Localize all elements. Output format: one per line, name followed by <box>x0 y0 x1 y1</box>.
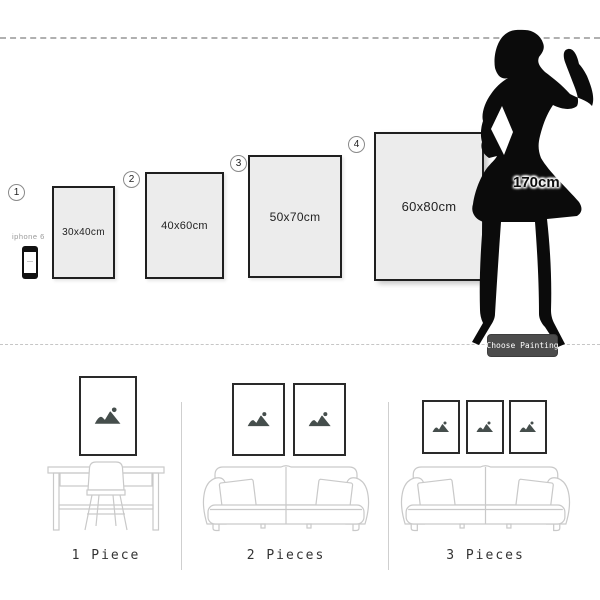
size-frame-50x70: 50x70cm <box>248 155 342 278</box>
wall-frame-scene2-right <box>293 383 346 456</box>
wall-frame-scene1 <box>79 376 137 456</box>
option-number-1: 1 <box>8 184 25 201</box>
iphone-icon <box>22 246 38 279</box>
desk-and-chair-illustration <box>47 458 165 534</box>
image-placeholder-icon <box>247 410 271 429</box>
scene-divider-1 <box>181 402 182 570</box>
sofa-illustration <box>201 461 371 533</box>
image-placeholder-icon <box>519 420 537 434</box>
size-label-50x70: 50x70cm <box>270 210 321 224</box>
wall-frame-scene2-left <box>232 383 285 456</box>
size-frame-30x40: 30x40cm <box>52 186 115 279</box>
size-label-30x40: 30x40cm <box>62 227 105 238</box>
image-placeholder-icon <box>476 420 494 434</box>
phone-label: iphone 6 <box>12 232 52 241</box>
wall-frame-scene3-right <box>509 400 547 454</box>
size-label-40x60: 40x60cm <box>161 220 208 232</box>
sofa-illustration <box>399 461 572 533</box>
option-number-4: 4 <box>348 136 365 153</box>
size-guide-infographic: 1 2 3 4 30x40cm 40x60cm 50x70cm 60x80cm … <box>0 0 600 600</box>
scene1-label: 1 Piece <box>47 548 165 563</box>
size-label-60x80: 60x80cm <box>402 199 457 214</box>
image-placeholder-icon <box>94 405 122 427</box>
scene3-label: 3 Pieces <box>399 548 572 563</box>
image-placeholder-icon <box>308 410 332 429</box>
scene2-label: 2 Pieces <box>201 548 371 563</box>
size-frame-40x60: 40x60cm <box>145 172 224 279</box>
wall-frame-scene3-center <box>466 400 504 454</box>
image-placeholder-icon <box>432 420 450 434</box>
scene-divider-2 <box>388 402 389 570</box>
figure-height-label: 170cm <box>513 174 560 191</box>
phone-screen <box>24 252 36 273</box>
option-number-2: 2 <box>123 171 140 188</box>
wall-frame-scene3-left <box>422 400 460 454</box>
option-number-3: 3 <box>230 155 247 172</box>
choose-painting-button[interactable]: Choose Painting <box>487 334 558 357</box>
